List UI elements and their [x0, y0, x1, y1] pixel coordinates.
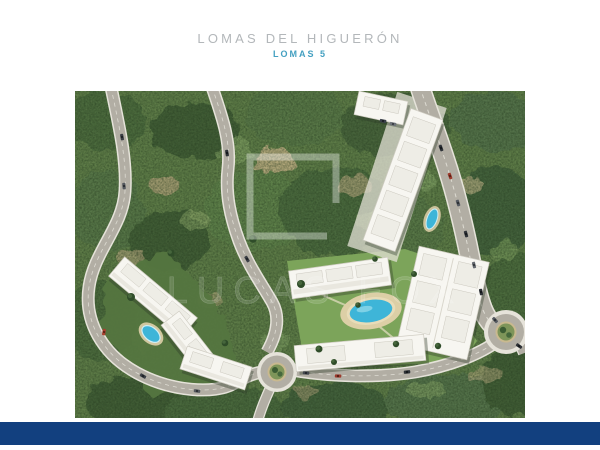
roundabout-center: [257, 352, 297, 392]
aerial-render-svg: LUCAS FOX: [75, 91, 525, 418]
page-title: LOMAS DEL HIGUERÓN: [0, 31, 600, 46]
aerial-image: LUCAS FOX: [75, 91, 525, 418]
page-header: LOMAS DEL HIGUERÓN LOMAS 5: [0, 31, 600, 59]
page-subtitle: LOMAS 5: [0, 49, 600, 59]
footer-brand-bar: [0, 422, 600, 445]
watermark-text: LUCAS FOX: [167, 270, 463, 312]
